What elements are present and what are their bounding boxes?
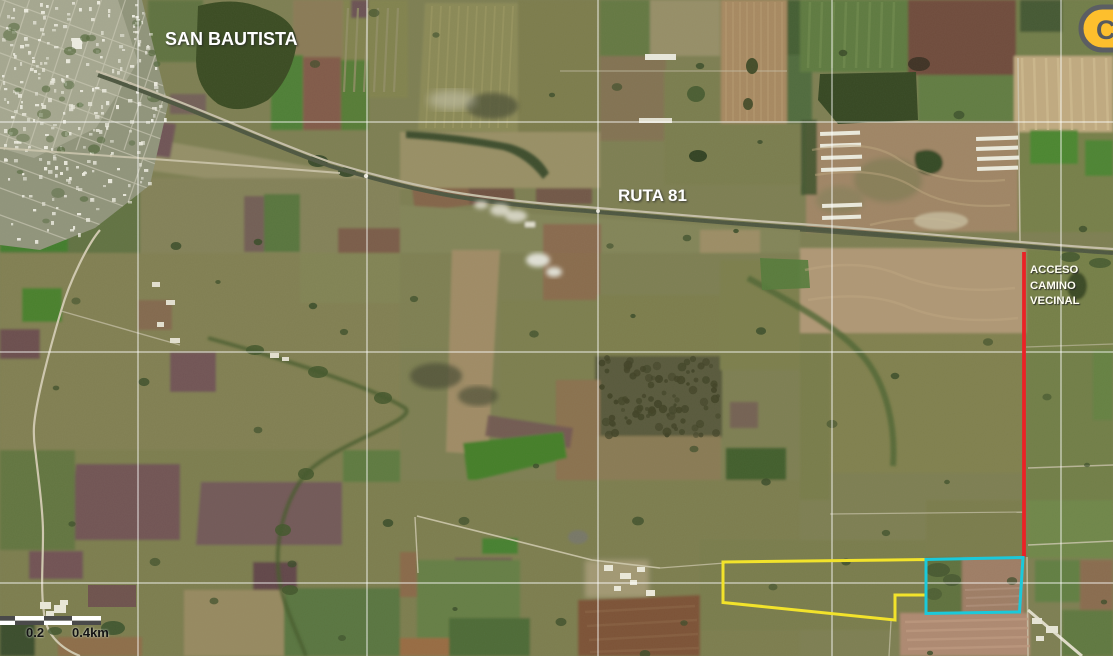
svg-text:RUTA 81: RUTA 81 <box>618 186 687 205</box>
svg-text:VECINAL: VECINAL <box>1030 295 1080 307</box>
svg-text:0.2: 0.2 <box>26 625 44 640</box>
svg-text:Co: Co <box>1096 15 1113 45</box>
svg-text:SAN BAUTISTA: SAN BAUTISTA <box>165 29 298 49</box>
svg-text:0.4km: 0.4km <box>72 625 109 640</box>
svg-text:CAMINO: CAMINO <box>1030 280 1076 292</box>
svg-text:ACCESO: ACCESO <box>1030 264 1079 276</box>
